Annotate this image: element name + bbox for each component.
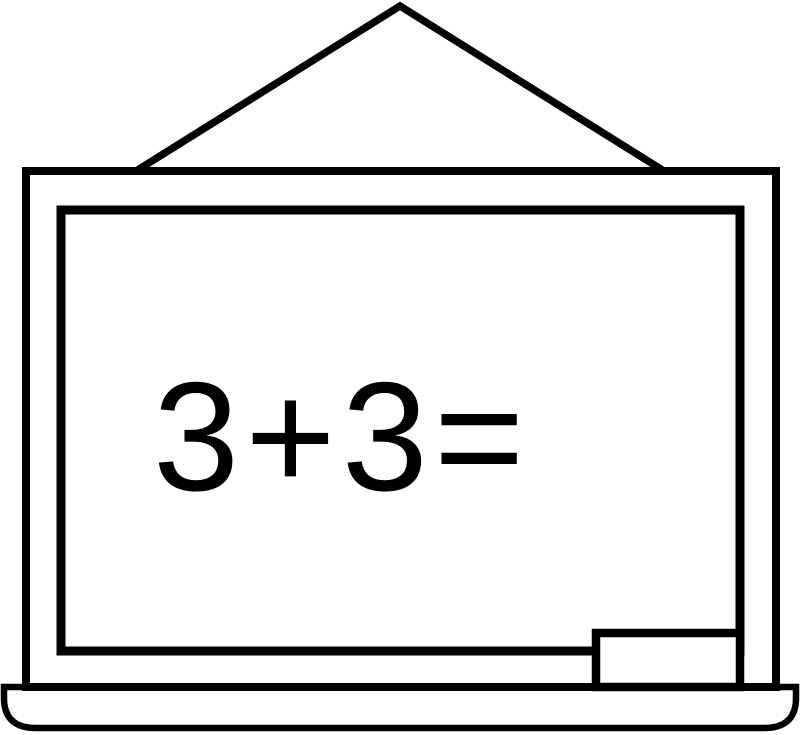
chalkboard-line-art: 3+3= bbox=[0, 0, 800, 735]
line-art-group: 3+3= bbox=[4, 6, 796, 728]
eraser bbox=[596, 633, 740, 687]
equation-text: 3+3= bbox=[153, 350, 530, 523]
chalk-tray bbox=[4, 687, 796, 728]
hanger-triangle bbox=[136, 6, 664, 171]
chalkboard-illustration: 3+3= bbox=[0, 0, 800, 735]
